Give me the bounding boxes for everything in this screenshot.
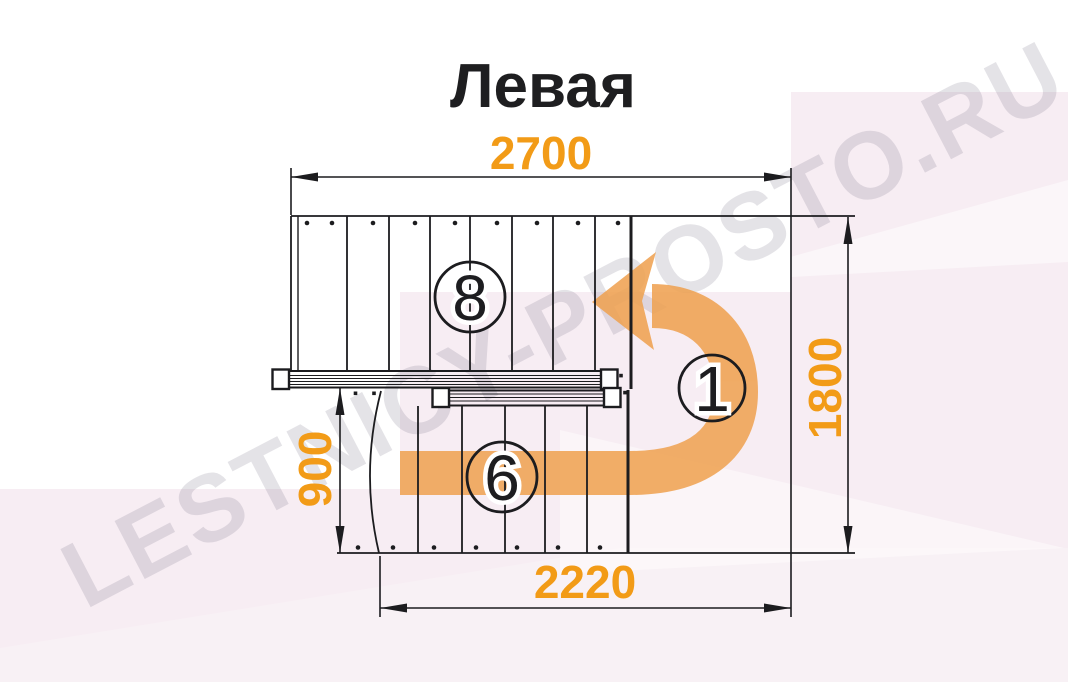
beam-end-cap (433, 388, 450, 407)
upper-flight-step-count: 8 (452, 262, 488, 334)
page-title: Левая (450, 52, 636, 121)
lower-flight-step-count: 6 (484, 442, 520, 514)
dimension-top-width-value: 2700 (490, 127, 592, 179)
stair-plan-diagram: LESTNICY-PROSTO.RU (0, 0, 1068, 682)
turn-number: 1 (694, 353, 730, 425)
beam-end-cap (604, 388, 621, 407)
beam-end-cap (601, 370, 618, 390)
stair-plan-canvas: LESTNICY-PROSTO.RU (0, 0, 1068, 682)
beam-end-cap (273, 370, 290, 390)
dimension-left-flight-length-value: 900 (289, 431, 341, 508)
dimension-bottom-width-value: 2220 (534, 556, 636, 608)
dimension-right-depth-value: 1800 (799, 337, 851, 439)
